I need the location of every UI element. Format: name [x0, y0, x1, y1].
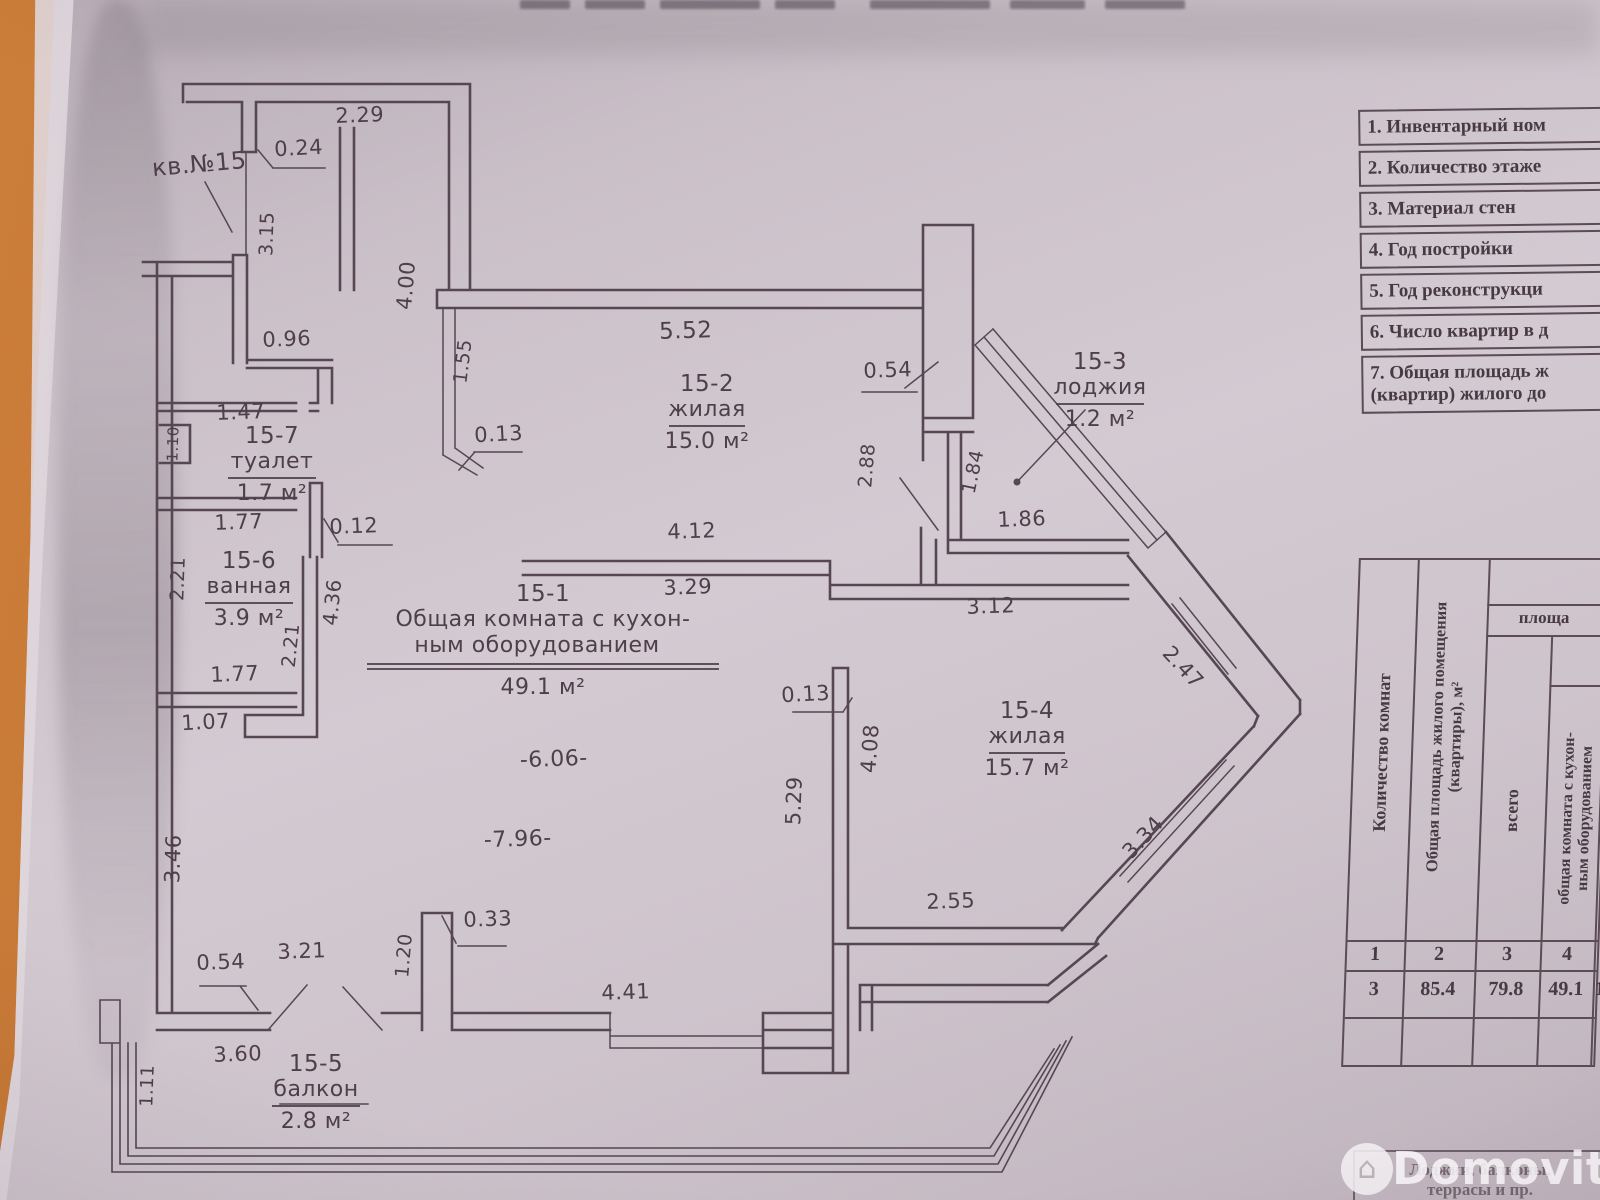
dimension-label: 3.12 — [966, 593, 1016, 619]
info-table-row-7-line2: (квартир) жилого до — [1370, 381, 1600, 406]
room-name: лоджия — [1053, 375, 1146, 400]
room-labels: 15-2жилая15.0 м²15-3лоджия1.2 м²15-7туал… — [205, 349, 1147, 1134]
area-table-col-number: 2 — [1434, 943, 1445, 966]
dimension-label: 1.77 — [210, 661, 260, 687]
area-table-value: 85.4 — [1420, 978, 1456, 1001]
room-name: ванная — [207, 574, 292, 599]
dimension-label: 3.34 — [1117, 811, 1168, 863]
room-label-15-3: 15-3лоджия1.2 м² — [1053, 349, 1146, 432]
domovita-logo-icon: ⌂ — [1341, 1143, 1393, 1195]
dimension-label: 2.47 — [1158, 641, 1209, 693]
dimension-label: 2.29 — [335, 102, 385, 128]
building-info-table: 1. Инвентарный ном2. Количество этаже3. … — [1358, 106, 1600, 419]
room-number: 15-5 — [289, 1051, 343, 1077]
dimension-label: 3.29 — [663, 574, 713, 600]
dimension-label: 5.29 — [781, 776, 807, 826]
dimension-label: 2.21 — [166, 556, 190, 601]
info-table-row-6: 6. Число квартир в д — [1361, 311, 1600, 351]
area-table-value: 79.8 — [1488, 978, 1524, 1001]
area-table-value: 49.1 — [1548, 978, 1584, 1001]
area-table-value: 3 — [1368, 978, 1379, 1001]
dimension-label: 1.10 — [163, 426, 182, 462]
room-label-15-7: 15-7туалет1.7 м² — [228, 423, 316, 506]
room-area: 1.7 м² — [237, 481, 307, 506]
area-table-col-number: 4 — [1562, 943, 1573, 966]
room-area: 3.9 м² — [214, 606, 284, 631]
area-table-cut-value: 1 — [1594, 978, 1600, 1001]
dimension-label: 4.12 — [667, 518, 717, 544]
room-number: 15-7 — [245, 423, 299, 449]
dimension-label: 0.12 — [329, 513, 379, 539]
dimension-labels: кв.№152.290.243.154.000.961.555.520.131.… — [136, 102, 1208, 1107]
area-table-col2-header: Общая площадь жилого помещения (квартиры… — [1421, 557, 1472, 917]
dimension-label: 1.55 — [449, 338, 476, 385]
room-number: 15-4 — [1000, 698, 1054, 724]
dimension-label: 0.54 — [863, 357, 913, 383]
room-number: 15-6 — [222, 548, 276, 574]
dimension-label: 3.60 — [213, 1041, 263, 1067]
room-area: 1.2 м² — [1065, 407, 1135, 432]
dimension-label: 1.84 — [958, 448, 989, 496]
dimension-label: -6.06- — [519, 746, 588, 773]
dimension-label: 3.46 — [160, 834, 186, 884]
dimension-label: 4.36 — [318, 578, 347, 627]
info-table-row-7: 7. Общая площадь ж(квартир) жилого до — [1361, 352, 1600, 414]
dimension-label: 3.15 — [255, 211, 279, 256]
area-table-col-number: 3 — [1502, 943, 1513, 966]
dimension-label: 4.41 — [601, 979, 651, 1005]
area-table-col1-header: Количество комнат — [1366, 583, 1399, 923]
dimension-label: 0.96 — [262, 326, 312, 352]
room-name: ным оборудованием — [414, 633, 659, 658]
room-area: 2.8 м² — [281, 1109, 351, 1134]
dimension-label: 4.08 — [856, 723, 883, 773]
room-name: туалет — [231, 449, 314, 474]
area-summary-table: Количество комнат Общая площадь жилого п… — [1341, 558, 1600, 1067]
area-table-col3-header: всего — [1496, 661, 1527, 961]
dimension-label: 0.13 — [781, 681, 831, 708]
room-name: жилая — [668, 397, 745, 422]
dimension-label: 1.86 — [997, 506, 1047, 532]
dimension-label: 0.54 — [196, 949, 246, 975]
dimension-label: 2.88 — [854, 442, 880, 488]
room-number: 15-3 — [1073, 349, 1127, 375]
area-table-col-number: 1 — [1370, 943, 1381, 966]
room-label-15-4: 15-4жилая15.7 м² — [985, 698, 1070, 781]
info-table-row-3: 3. Материал стен — [1359, 188, 1600, 228]
room-label-15-5: 15-5балкон2.8 м² — [272, 1051, 360, 1134]
loggia-leader-dot — [1014, 479, 1021, 486]
dimension-label: 5.52 — [659, 317, 713, 345]
room-name: балкон — [273, 1077, 358, 1102]
dimension-label: 0.33 — [463, 906, 513, 932]
area-table-col4-header: общая комната с кухон- ным оборудованием — [1553, 653, 1600, 983]
info-table-row-5: 5. Год реконструкци — [1360, 270, 1600, 310]
dimension-label: 4.00 — [392, 260, 420, 311]
dimension-label: кв.№15 — [151, 146, 248, 182]
room-number: 15-2 — [680, 371, 734, 397]
room-label-15-6: 15-6ванная3.9 м² — [205, 548, 293, 631]
room-area: 49.1 м² — [501, 675, 586, 700]
watermark-brand: Domovita — [1392, 1142, 1600, 1195]
dimension-label: 1.20 — [391, 932, 417, 978]
room-label-15-2: 15-2жилая15.0 м² — [665, 371, 750, 454]
room-area: 15.0 м² — [665, 429, 750, 454]
dimension-label: 1.11 — [136, 1064, 158, 1107]
dimension-label: 1.47 — [216, 399, 266, 425]
info-table-row-4: 4. Год постройки — [1360, 229, 1600, 269]
area-table-span-header: площа — [1518, 608, 1569, 628]
room-area: 15.7 м² — [985, 756, 1070, 781]
dimension-label: 0.24 — [274, 135, 324, 162]
dimension-label: 1.77 — [214, 509, 264, 535]
room-name: жилая — [988, 724, 1065, 749]
room-number: 15-1 — [516, 581, 570, 607]
info-table-row-2: 2. Количество этаже — [1359, 147, 1600, 187]
room-name: Общая комната с кухон- — [395, 607, 690, 632]
dimension-label: 1.07 — [181, 709, 231, 736]
balcony-railing — [100, 1000, 1072, 1172]
dimension-label: -7.96- — [483, 826, 552, 853]
dimension-label: 2.55 — [926, 888, 976, 914]
dimension-label: 3.21 — [277, 938, 327, 964]
dimension-label: 0.13 — [474, 421, 524, 448]
info-table-row-1: 1. Инвентарный ном — [1358, 106, 1600, 146]
